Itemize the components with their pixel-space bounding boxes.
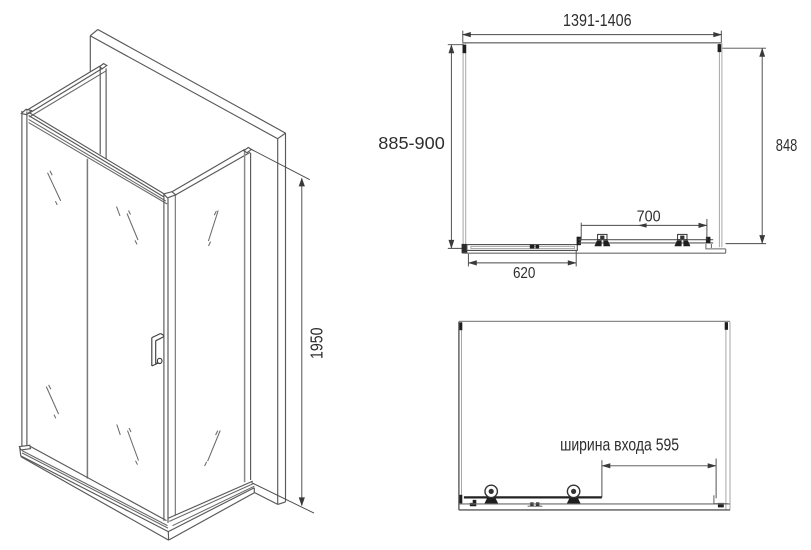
svg-text:620: 620 <box>513 265 536 282</box>
svg-text:1950: 1950 <box>307 327 327 359</box>
svg-text:700: 700 <box>637 208 661 225</box>
svg-text:885-900: 885-900 <box>378 133 445 153</box>
svg-text:1391-1406: 1391-1406 <box>563 10 632 30</box>
svg-text:ширина входа 595: ширина входа 595 <box>560 434 679 454</box>
svg-text:848: 848 <box>776 135 798 155</box>
